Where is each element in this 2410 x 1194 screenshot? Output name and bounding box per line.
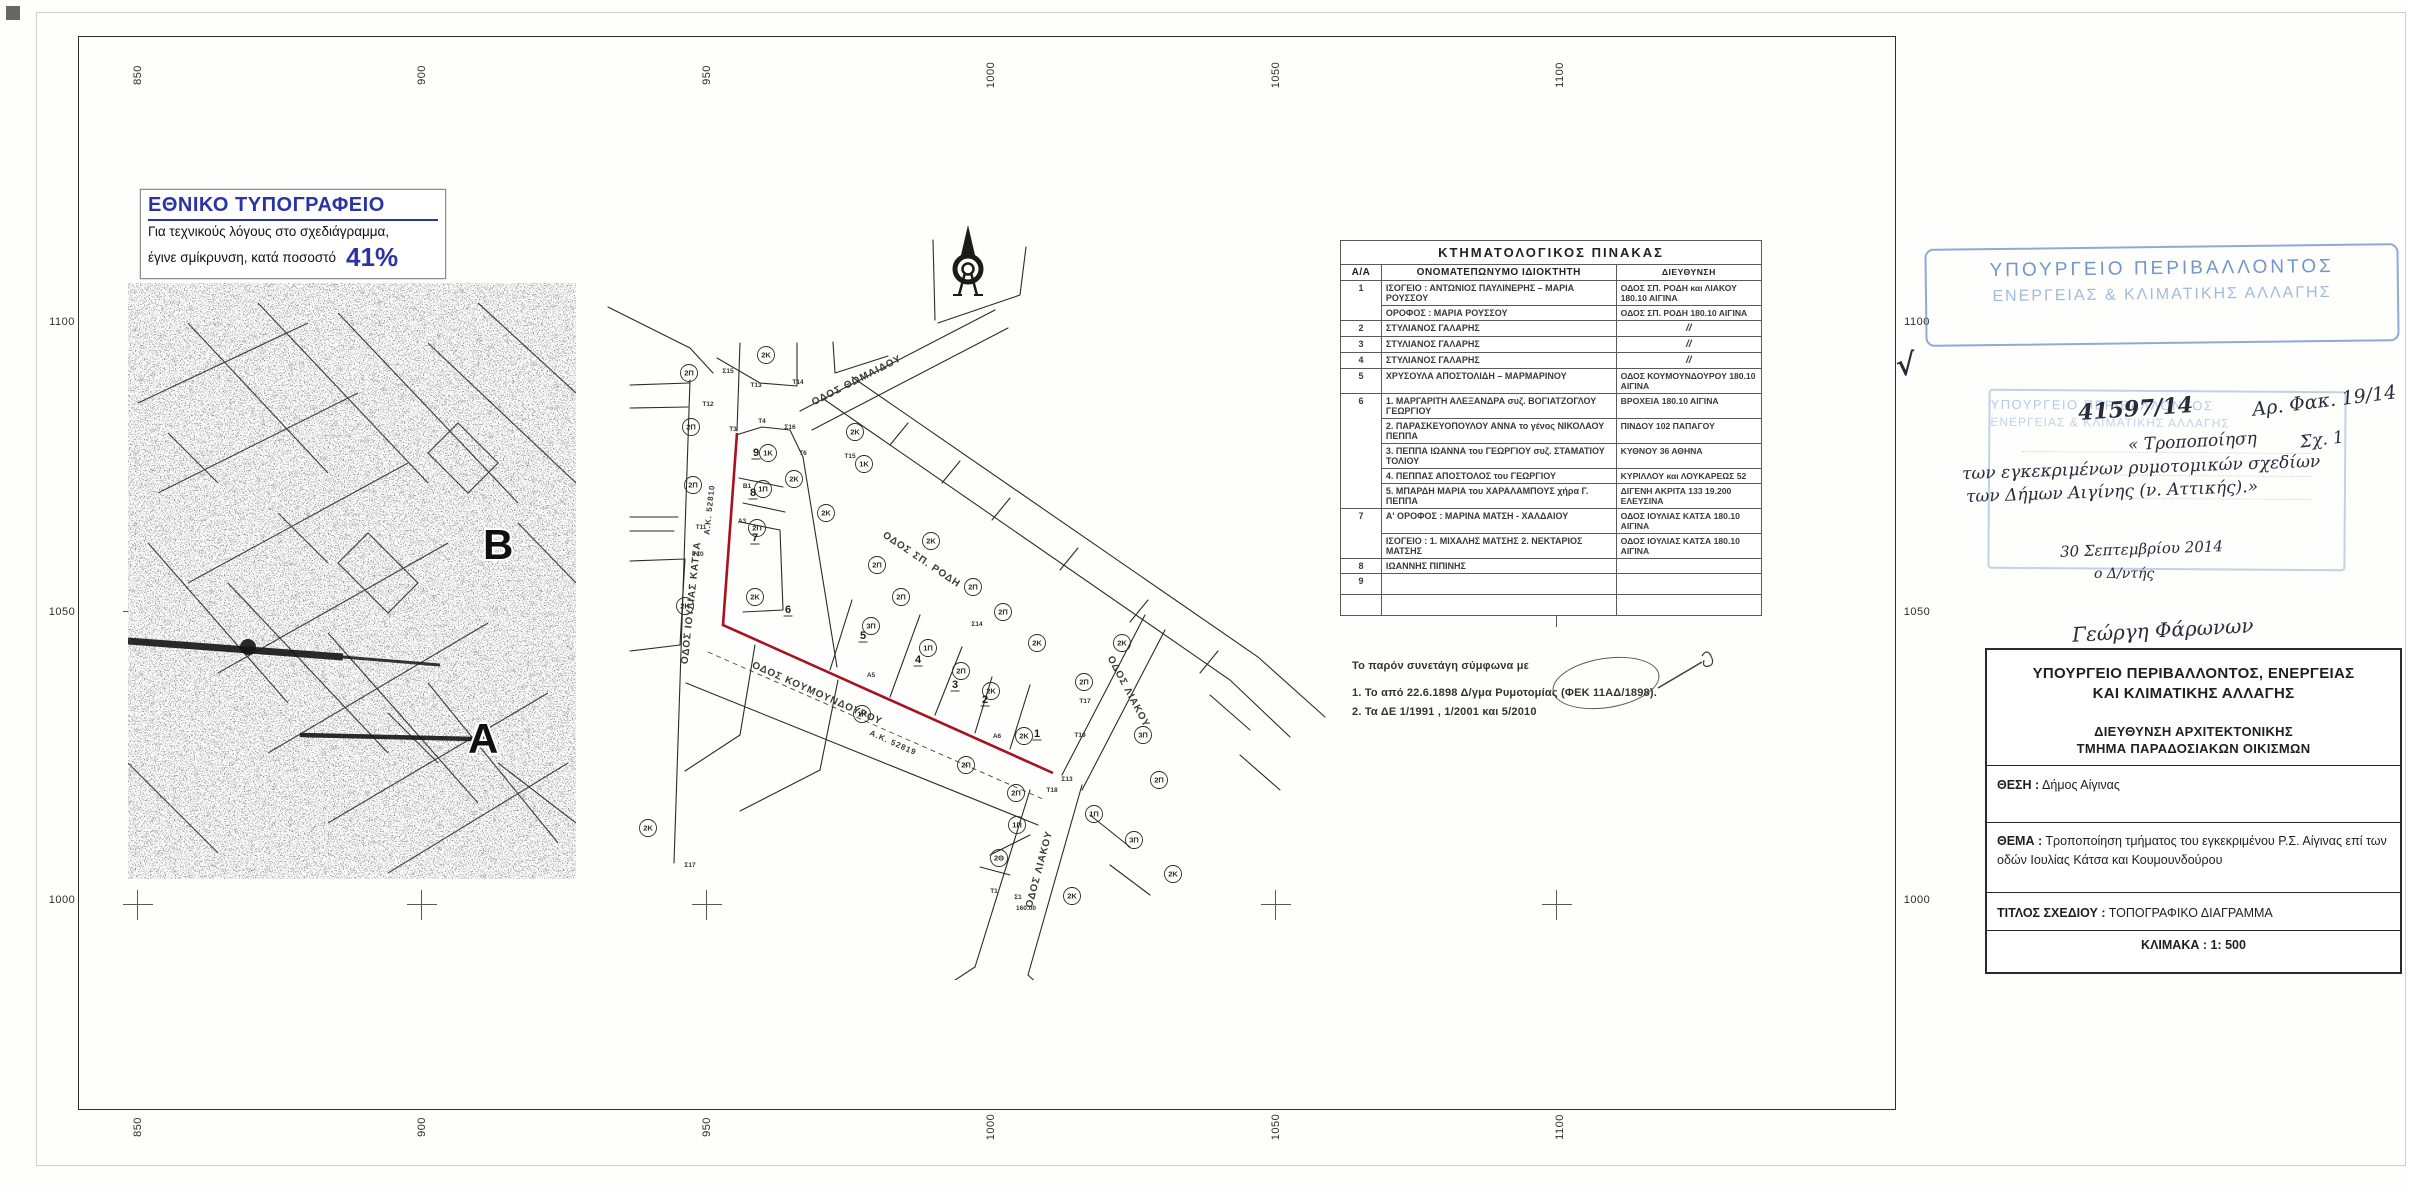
printing-office-note: ΕΘΝΙΚΟ ΤΥΠΟΓΡΑΦΕΙΟ Για τεχνικούς λόγους … <box>140 189 446 279</box>
cadastral-cell-address: ΔΙΓΕΝΗ ΑΚΡΙΤΑ 133 19.200 ΕΛΕΥΣΙΝΑ <box>1616 484 1761 509</box>
zone-label: 1Κ <box>859 460 869 469</box>
scanned-topographic-sheet: 8509009501000105011008509009501000105011… <box>0 0 2410 1194</box>
note-item-2: 2. Τα ΔΕ 1/1991 , 1/2001 και 5/2010 <box>1352 706 1537 718</box>
grid-cross-mark <box>1542 890 1572 920</box>
cadastral-row: 3. ΠΕΠΠΑ ΙΩΑΝΝΑ του ΓΕΩΡΓΙΟΥ συζ. ΣΤΑΜΑΤ… <box>1341 444 1762 469</box>
ellipse-tail-squiggle <box>1640 634 1750 704</box>
grid-coordinate-label: 1100 <box>1554 62 1566 88</box>
grid-coordinate-label: 1000 <box>1904 894 1930 906</box>
zone-label: 2Π <box>961 761 971 770</box>
col-header-owner: ΟΝΟΜΑΤΕΠΩΝΥΜΟ ΙΔΙΟΚΤΗΤΗ <box>1381 265 1616 281</box>
cadastral-row: 8ΙΩΑΝΝΗΣ ΠΙΠΙΝΗΣ <box>1341 559 1762 574</box>
zone-label: 1Π <box>923 644 933 653</box>
survey-point-label: Σ14 <box>971 621 983 628</box>
street-name-label: Α.Κ. 52810 <box>702 484 716 535</box>
grid-coordinate-label: 850 <box>132 1117 144 1137</box>
street-name-label: Α.Κ. 52819 <box>868 728 918 757</box>
cadastral-cell-owner: ΙΣΟΓΕΙΟ : 1. ΜΙΧΑΛΗΣ ΜΑΤΣΗΣ 2. ΝΕΚΤΑΡΙΟΣ… <box>1381 534 1616 559</box>
cadastral-row: 4. ΠΕΠΠΑΣ ΑΠΟΣΤΟΛΟΣ του ΓΕΩΡΓΙΟΥΚΥΡΙΛΛΟΥ… <box>1341 469 1762 484</box>
zone-label: 2Κ <box>1117 639 1127 648</box>
cadastral-cell-address: ΠΙΝΔΟΥ 102 ΠΑΠΑΓΟΥ <box>1616 419 1761 444</box>
survey-point-label: Τ18 <box>1046 787 1058 794</box>
cadastral-cell-address: // <box>1616 353 1761 369</box>
printing-office-line1: Για τεχνικούς λόγους στο σχεδιάγραμμα, <box>148 224 438 241</box>
cadastral-cell-owner: ΧΡΥΣΟΥΛΑ ΑΠΟΣΤΟΛΙΔΗ – ΜΑΡΜΑΡΙΝΟΥ <box>1381 369 1616 394</box>
survey-point-label: Σ17 <box>684 862 696 869</box>
title-block-ministry: ΥΠΟΥΡΓΕΙΟ ΠΕΡΙΒΑΛΛΟΝΤΟΣ, ΕΝΕΡΓΕΙΑΣ ΚΑΙ Κ… <box>1987 664 2400 703</box>
title-block-divider <box>1987 930 2400 931</box>
grid-coordinate-label: 900 <box>416 65 428 85</box>
cadastral-cell-number: 5 <box>1341 369 1382 394</box>
cadastral-cell-address: ΒΡΟΧΕΙΑ 180.10 ΑΙΓΙΝΑ <box>1616 394 1761 419</box>
cadastral-cell-owner: 3. ΠΕΠΠΑ ΙΩΑΝΝΑ του ΓΕΩΡΓΙΟΥ συζ. ΣΤΑΜΑΤ… <box>1381 444 1616 469</box>
zone-label: 1Π <box>758 485 768 494</box>
location-label: ΘΕΣΗ : <box>1997 778 2039 792</box>
title-block: ΥΠΟΥΡΓΕΙΟ ΠΕΡΙΒΑΛΛΟΝΤΟΣ, ΕΝΕΡΓΕΙΑΣ ΚΑΙ Κ… <box>1985 648 2402 974</box>
zone-label: 2Π <box>998 608 1008 617</box>
zone-label: 2Κ <box>1067 892 1077 901</box>
cadastral-cell-address: ΚΥΡΙΛΛΟΥ και ΛΟΥΚΑΡΕΩΣ 52 <box>1616 469 1761 484</box>
zone-label: 2Κ <box>1168 870 1178 879</box>
survey-point-label: Α5 <box>867 672 876 679</box>
scale-row: ΚΛΙΜΑΚΑ : 1: 500 <box>1987 936 2400 955</box>
stamp-line1: ΥΠΟΥΡΓΕΙΟ ΠΕΡΙΒΑΛΛΟΝΤΟΣ <box>1927 255 2397 283</box>
printing-office-title: ΕΘΝΙΚΟ ΤΥΠΟΓΡΑΦΕΙΟ <box>148 194 438 221</box>
cadastral-row: ΙΣΟΓΕΙΟ : 1. ΜΙΧΑΛΗΣ ΜΑΤΣΗΣ 2. ΝΕΚΤΑΡΙΟΣ… <box>1341 534 1762 559</box>
cadastral-cell-owner: 5. ΜΠΑΡΔΗ ΜΑΡΙΑ του ΧΑΡΑΛΑΜΠΟΥΣ χήρα Γ. … <box>1381 484 1616 509</box>
zone-label: 2Κ <box>643 824 653 833</box>
north-arrow-icon <box>953 225 983 295</box>
grid-coordinate-label: 950 <box>701 65 713 85</box>
cadastral-cell-owner: ΙΩΑΝΝΗΣ ΠΙΠΙΝΗΣ <box>1381 559 1616 574</box>
overview-raster-map: B A <box>128 283 576 879</box>
survey-point-label: Τ17 <box>1079 698 1091 705</box>
cadastral-plan-drawing: 2Π2Κ2Π2Π2Κ2Κ1Κ1Π2Κ2Κ2Κ1Κ2Π2Κ2Π2Π2Π2Π2Κ3Π… <box>590 215 1330 980</box>
drawing-title-label: ΤΙΤΛΟΣ ΣΧΕΔΙΟΥ : <box>1997 906 2106 920</box>
cadastral-cell-owner <box>1381 574 1616 595</box>
survey-point-label: Τ3 <box>729 426 737 433</box>
col-header-aa: Α/Α <box>1341 265 1382 281</box>
cadastral-row: 3ΣΤΥΛΙΑΝΟΣ ΓΑΛΑΡΗΣ// <box>1341 337 1762 353</box>
survey-point-labels: Σ15Σ16Σ14Σ13Τ3Τ4Τ6Τ12Τ13Τ14Τ15Τ11Τ10Τ17Τ… <box>684 368 1091 912</box>
grid-coordinate-label: 850 <box>132 65 144 85</box>
cadastral-row: 4ΣΤΥΛΙΑΝΟΣ ΓΑΛΑΡΗΣ// <box>1341 353 1762 369</box>
parcel-number: 7 <box>752 532 758 544</box>
modified-alignment-red-line <box>723 433 1053 773</box>
cadastral-cell-address <box>1616 559 1761 574</box>
cadastral-table-title: ΚΤΗΜΑΤΟΛΟΓΙΚΟΣ ΠΙΝΑΚΑΣ <box>1341 241 1762 265</box>
grid-coordinate-label: 1100 <box>1554 1114 1566 1140</box>
cadastral-cell-address: ΟΔΟΣ ΣΠ. ΡΟΔΗ και ΛΙΑΚΟΥ 180.10 ΑΙΓΙΝΑ <box>1616 281 1761 306</box>
zone-label: 1Π <box>1012 821 1022 830</box>
title-block-department: ΔΙΕΥΘΥΝΣΗ ΑΡΧΙΤΕΚΤΟΝΙΚΗΣ ΤΜΗΜΑ ΠΑΡΑΔΟΣΙΑ… <box>1987 724 2400 758</box>
survey-point-label: Α3 <box>738 518 747 525</box>
street-name-label: ΟΔΟΣ ΛΙΑΚΟΥ <box>1105 654 1152 729</box>
cadastral-cell-owner: 4. ΠΕΠΠΑΣ ΑΠΟΣΤΟΛΟΣ του ΓΕΩΡΓΙΟΥ <box>1381 469 1616 484</box>
cadastral-cell-owner: ΣΤΥΛΙΑΝΟΣ ΓΑΛΑΡΗΣ <box>1381 337 1616 353</box>
survey-point-label: Τ12 <box>702 401 714 408</box>
cadastral-cell-owner: ΣΤΥΛΙΑΝΟΣ ΓΑΛΑΡΗΣ <box>1381 321 1616 337</box>
survey-point-label: Σ15 <box>722 368 734 375</box>
grid-coordinate-label: 1050 <box>1270 1114 1282 1140</box>
cadastral-cell-address <box>1616 595 1761 616</box>
handwritten-role: ο Δ/ντής <box>2094 566 2154 582</box>
zone-label: 2Θ <box>994 854 1004 863</box>
survey-point-label: Τ6 <box>799 450 807 457</box>
survey-point-label: Τ14 <box>792 379 804 386</box>
cadastral-row: 2ΣΤΥΛΙΑΝΟΣ ΓΑΛΑΡΗΣ// <box>1341 321 1762 337</box>
grid-coordinate-label: 900 <box>416 1117 428 1137</box>
survey-point-label: Σ16 <box>784 424 796 431</box>
cadastral-row: 61. ΜΑΡΓΑΡΙΤΗ ΑΛΕΞΑΝΔΡΑ συζ. ΒΟΓΙΑΤΖΟΓΛΟ… <box>1341 394 1762 419</box>
zone-label: 2Π <box>968 583 978 592</box>
cadastral-cell-address: // <box>1616 321 1761 337</box>
cadastral-table: ΚΤΗΜΑΤΟΛΟΓΙΚΟΣ ΠΙΝΑΚΑΣ Α/Α ΟΝΟΜΑΤΕΠΩΝΥΜΟ… <box>1340 240 1762 616</box>
zone-label: 2Π <box>1079 678 1089 687</box>
survey-point-label: Τ15 <box>844 453 856 460</box>
printing-office-line2-text: έγινε σμίκρυνση, κατά ποσοστό <box>148 250 336 265</box>
cadastral-row: 9 <box>1341 574 1762 595</box>
col-header-address: ΔΙΕΥΘΥΝΣΗ <box>1616 265 1761 281</box>
survey-point-label: Τ1 <box>990 888 998 895</box>
cadastral-cell-owner: 2. ΠΑΡΑΣΚΕΥΟΠΟΥΛΟΥ ΑΝΝΑ το γένος ΝΙΚΟΛΑΟ… <box>1381 419 1616 444</box>
zone-label: 2Κ <box>750 593 760 602</box>
survey-point-label: Τ4 <box>758 418 766 425</box>
street-name-labels: ΟΔΟΣ ΙΟΥΛΙΑΣ ΚΑΤΣΑΑ.Κ. 52810ΟΔΟΣ ΘΩΜΑΙΔΟ… <box>680 353 1152 909</box>
cadastral-cell-address: // <box>1616 337 1761 353</box>
zone-label: 2Κ <box>1032 639 1042 648</box>
ministry-line1: ΥΠΟΥΡΓΕΙΟ ΠΕΡΙΒΑΛΛΟΝΤΟΣ, ΕΝΕΡΓΕΙΑΣ <box>1987 664 2400 684</box>
survey-point-label: Σ1 <box>1014 894 1022 901</box>
zone-label: 2Π <box>684 369 694 378</box>
stamp-line2: ΕΝΕΡΓΕΙΑΣ & ΚΛΙΜΑΤΙΚΗΣ ΑΛΛΑΓΗΣ <box>1927 283 2397 307</box>
zone-label: 2Π <box>896 593 906 602</box>
survey-point-label: Σ13 <box>1061 776 1073 783</box>
cadastral-row: ΟΡΟΦΟΣ : ΜΑΡΙΑ ΡΟΥΣΣΟΥΟΔΟΣ ΣΠ. ΡΟΔΗ 180.… <box>1341 306 1762 321</box>
grid-cross-mark <box>407 890 437 920</box>
zone-label: 2Π <box>688 481 698 490</box>
dept-line1: ΔΙΕΥΘΥΝΣΗ ΑΡΧΙΤΕΚΤΟΝΙΚΗΣ <box>1987 724 2400 741</box>
cadastral-cell-number: 1 <box>1341 281 1382 321</box>
drawing-title-value: ΤΟΠΟΓΡΑΦΙΚΟ ΔΙΑΓΡΑΜΜΑ <box>2109 906 2273 920</box>
parcel-number: 3 <box>952 679 958 691</box>
cadastral-cell-address: ΚΥΘΝΟΥ 36 ΑΘΗΝΑ <box>1616 444 1761 469</box>
survey-point-label: Τ19 <box>1074 732 1086 739</box>
grid-coordinate-label: 1000 <box>49 894 75 906</box>
location-value: Δήμος Αίγινας <box>2042 778 2120 792</box>
printing-office-line2: έγινε σμίκρυνση, κατά ποσοστό41% <box>148 241 438 274</box>
cadastral-cell-address <box>1616 574 1761 595</box>
cadastral-cell-owner: 1. ΜΑΡΓΑΡΙΤΗ ΑΛΕΞΑΝΔΡΑ συζ. ΒΟΓΙΑΤΖΟΓΛΟΥ… <box>1381 394 1616 419</box>
zone-label: 2Π <box>686 423 696 432</box>
cadastral-cell-owner: ΙΣΟΓΕΙΟ : ΑΝΤΩΝΙΟΣ ΠΑΥΛΙΝΕΡΗΣ – ΜΑΡΙΑ ΡΟ… <box>1381 281 1616 306</box>
cadastral-row: 1ΙΣΟΓΕΙΟ : ΑΝΤΩΝΙΟΣ ΠΑΥΛΙΝΕΡΗΣ – ΜΑΡΙΑ Ρ… <box>1341 281 1762 306</box>
grid-coordinate-label: 950 <box>701 1117 713 1137</box>
grid-cross-mark <box>123 890 153 920</box>
zone-label: 1Π <box>1089 810 1099 819</box>
cadastral-cell-owner: ΣΤΥΛΙΑΝΟΣ ΓΑΛΑΡΗΣ <box>1381 353 1616 369</box>
title-block-divider <box>1987 822 2400 823</box>
grid-coordinate-label: 1000 <box>985 1114 997 1140</box>
zone-label: 2Κ <box>926 537 936 546</box>
zone-label: 2Κ <box>789 475 799 484</box>
reduction-percentage: 41% <box>346 242 398 272</box>
grid-coordinate-label: 1100 <box>49 316 75 328</box>
zone-label: 2Κ <box>761 351 771 360</box>
cadastral-title-row: ΚΤΗΜΑΤΟΛΟΓΙΚΟΣ ΠΙΝΑΚΑΣ <box>1341 241 1762 265</box>
cadastral-cell-number: 6 <box>1341 394 1382 509</box>
parcel-number: 5 <box>860 630 866 642</box>
subject-label: ΘΕΜΑ : <box>1997 834 2042 848</box>
drawing-title-row: ΤΙΤΛΟΣ ΣΧΕΔΙΟΥ : ΤΟΠΟΓΡΑΦΙΚΟ ΔΙΑΓΡΑΜΜΑ <box>1987 896 2400 931</box>
grid-coordinate-label: 1050 <box>49 606 75 618</box>
cadastral-cell-owner <box>1381 595 1616 616</box>
zone-label: 3Π <box>1138 731 1148 740</box>
cadastral-cell-address: ΟΔΟΣ ΙΟΥΛΙΑΣ ΚΑΤΣΑ 180.10 ΑΙΓΙΝΑ <box>1616 509 1761 534</box>
survey-point-label: Β1 <box>743 483 752 490</box>
street-lines <box>608 240 1325 980</box>
parcel-number: 2 <box>982 694 988 706</box>
zone-label: 3Π <box>866 622 876 631</box>
parcel-number: 9 <box>753 447 759 459</box>
cadastral-cell-number: 3 <box>1341 337 1382 353</box>
zone-label: 2Π <box>956 667 966 676</box>
grid-coordinate-label: 1000 <box>985 62 997 88</box>
parcel-number: 4 <box>915 654 922 666</box>
raster-map-speckle <box>128 283 576 879</box>
cadastral-cell-address: ΟΔΟΣ ΣΠ. ΡΟΔΗ 180.10 ΑΙΓΙΝΑ <box>1616 306 1761 321</box>
cadastral-cell-number: 4 <box>1341 353 1382 369</box>
overview-label-b: B <box>483 521 513 568</box>
note-intro: Το παρόν συνετάγη σύμφωνα με <box>1352 660 1529 672</box>
parcel-number: 6 <box>785 604 791 616</box>
zone-label: 2Π <box>1154 776 1164 785</box>
cadastral-cell-number: 8 <box>1341 559 1382 574</box>
street-name-label: ΟΔΟΣ ΣΠ. ΡΟΔΗ <box>880 530 962 590</box>
zone-label: 2Κ <box>1019 732 1029 741</box>
zone-label: 2Π <box>872 561 882 570</box>
handwritten-checkmark: √ <box>1894 347 1917 384</box>
parcel-number: 1 <box>1034 728 1040 740</box>
cadastral-cell-owner: ΟΡΟΦΟΣ : ΜΑΡΙΑ ΡΟΥΣΣΟΥ <box>1381 306 1616 321</box>
overview-label-a: A <box>468 715 498 762</box>
cadastral-header-row: Α/Α ΟΝΟΜΑΤΕΠΩΝΥΜΟ ΙΔΙΟΚΤΗΤΗ ΔΙΕΥΘΥΝΣΗ <box>1341 265 1762 281</box>
cadastral-row: 5ΧΡΥΣΟΥΛΑ ΑΠΟΣΤΟΛΙΔΗ – ΜΑΡΜΑΡΙΝΟΥΟΔΟΣ ΚΟ… <box>1341 369 1762 394</box>
zone-label: 2Π <box>1011 789 1021 798</box>
zone-type-labels: 2Π2Κ2Π2Π2Κ2Κ1Κ1Π2Κ2Κ2Κ1Κ2Π2Κ2Π2Π2Π2Π2Κ3Π… <box>640 347 1182 905</box>
street-name-label: ΟΔΟΣ ΘΩΜΑΙΔΟΥ <box>810 353 903 408</box>
zone-label: 2Κ <box>850 428 860 437</box>
scan-corner-artifact <box>6 6 20 20</box>
cadastral-cell-owner: Α' ΟΡΟΦΟΣ : ΜΑΡΙΝΑ ΜΑΤΣΗ - ΧΑΛΔΑΙΟΥ <box>1381 509 1616 534</box>
title-block-divider <box>1987 892 2400 893</box>
ministry-line2: ΚΑΙ ΚΛΙΜΑΤΙΚΗΣ ΑΛΛΑΓΗΣ <box>1987 684 2400 704</box>
grid-coordinate-label: 1050 <box>1904 606 1930 618</box>
cadastral-row: 5. ΜΠΑΡΔΗ ΜΑΡΙΑ του ΧΑΡΑΛΑΜΠΟΥΣ χήρα Γ. … <box>1341 484 1762 509</box>
cadastral-cell-number: 2 <box>1341 321 1382 337</box>
cadastral-cell-address: ΟΔΟΣ ΚΟΥΜΟΥΝΔΟΥΡΟΥ 180.10 ΑΙΓΙΝΑ <box>1616 369 1761 394</box>
subject-row: ΘΕΜΑ : Τροποποίηση τμήματος του εγκεκριμ… <box>1987 824 2400 878</box>
location-row: ΘΕΣΗ : Δήμος Αίγινας <box>1987 768 2400 803</box>
cadastral-row: 2. ΠΑΡΑΣΚΕΥΟΠΟΥΛΟΥ ΑΝΝΑ το γένος ΝΙΚΟΛΑΟ… <box>1341 419 1762 444</box>
cadastral-row: 7Α' ΟΡΟΦΟΣ : ΜΑΡΙΝΑ ΜΑΤΣΗ - ΧΑΛΔΑΙΟΥΟΔΟΣ… <box>1341 509 1762 534</box>
zone-label: 3Π <box>1129 836 1139 845</box>
cadastral-cell-number: 9 <box>1341 574 1382 595</box>
title-block-divider <box>1987 765 2400 766</box>
survey-point-label: Τ13 <box>750 382 762 389</box>
cadastral-cell-number: 7 <box>1341 509 1382 559</box>
scale-value: 1: 500 <box>2211 938 2246 952</box>
cadastral-cell-number <box>1341 595 1382 616</box>
cadastral-cell-address: ΟΔΟΣ ΙΟΥΛΙΑΣ ΚΑΤΣΑ 180.10 ΑΙΓΙΝΑ <box>1616 534 1761 559</box>
subject-value: Τροποποίηση τμήματος του εγκεκριμένου Ρ.… <box>1997 834 2387 867</box>
zone-label: 1Κ <box>763 449 773 458</box>
ministry-stamp: ΥΠΟΥΡΓΕΙΟ ΠΕΡΙΒΑΛΛΟΝΤΟΣ ΕΝΕΡΓΕΙΑΣ & ΚΛΙΜ… <box>1924 243 2399 347</box>
cadastral-row <box>1341 595 1762 616</box>
survey-point-label: Α6 <box>993 733 1002 740</box>
scale-label: ΚΛΙΜΑΚΑ : <box>2141 938 2207 952</box>
dept-line2: ΤΜΗΜΑ ΠΑΡΑΔΟΣΙΑΚΩΝ ΟΙΚΙΣΜΩΝ <box>1987 741 2400 758</box>
zone-label: 2Κ <box>821 509 831 518</box>
grid-coordinate-label: 1050 <box>1270 62 1282 88</box>
